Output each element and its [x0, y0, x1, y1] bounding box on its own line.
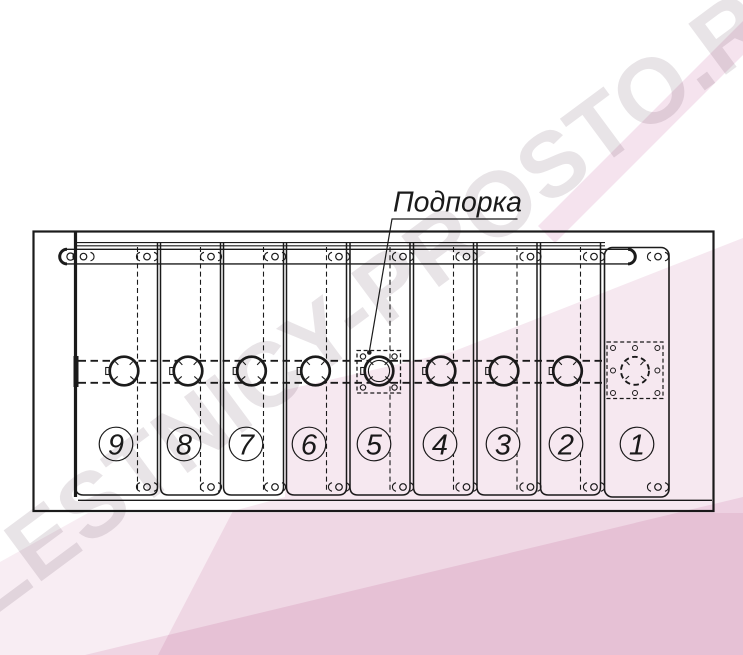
rail-right-cap [628, 249, 635, 264]
rivet-arc-right [601, 483, 605, 492]
mount-plate-hole [611, 346, 616, 351]
rivet-arc-right [601, 252, 605, 261]
rivet-arc-left [136, 252, 140, 261]
rivet-hole [527, 253, 534, 260]
step-number-badge: 4 [423, 427, 457, 461]
rivet-icon [647, 483, 668, 492]
step-number: 5 [366, 429, 383, 461]
rivet-arc-right [91, 252, 95, 261]
mount-plate-hole [633, 391, 638, 396]
bolt-tick [626, 362, 629, 365]
support-callout-label: Подпорка [393, 187, 522, 219]
rivet-arc-left [136, 483, 140, 492]
bolt-circle [365, 357, 394, 386]
rivet-arc-left [647, 483, 651, 492]
rivet-hole [527, 484, 534, 491]
rivet-arc-right [154, 483, 158, 492]
bolt-circle [553, 357, 582, 386]
rivet-hole [272, 484, 279, 491]
rivet-icon [583, 483, 604, 492]
rivet-hole [208, 253, 215, 260]
step-number-badge: 9 [99, 427, 133, 461]
step-number: 8 [176, 429, 192, 461]
rivet-icon [136, 483, 157, 492]
rivet-icon [200, 252, 221, 261]
rail-left-cap [60, 249, 67, 264]
diagram-canvas: Подпорка 987654321 LESTNICY-PROSTO.RU [0, 0, 743, 655]
mount-hole-circle [621, 357, 649, 385]
step-number-badge: 5 [357, 427, 391, 461]
rivet-arc-left [583, 483, 587, 492]
step-number-badge: 8 [167, 427, 201, 461]
rivet-arc-left [520, 483, 524, 492]
step-number: 4 [432, 429, 448, 461]
rivet-arc-left [200, 483, 204, 492]
rivet-arc-left [264, 252, 268, 261]
mount-plate-hole [633, 346, 638, 351]
bolt-circle [427, 357, 456, 386]
rivet-hole [208, 484, 215, 491]
rivet-hole [80, 253, 87, 260]
rivet-hole [591, 484, 598, 491]
mount-plate-hole [655, 368, 660, 373]
bolt-circle [490, 357, 519, 386]
rivet-arc-left [583, 252, 587, 261]
rivet-arc-left [392, 483, 396, 492]
rivet-arc-right [665, 252, 669, 261]
rivet-hole [463, 253, 470, 260]
rivet-hole [655, 253, 662, 260]
rivet-icon [647, 252, 668, 261]
bolt-circle [110, 357, 139, 386]
mount-plate-hole [655, 391, 660, 396]
callout-leader-line [369, 219, 392, 354]
rivet-arc-left [520, 252, 524, 261]
rivet-arc-left [328, 252, 332, 261]
rivet-arc-left [647, 252, 651, 261]
bolt-tick [641, 376, 644, 379]
rivet-arc-left [328, 483, 332, 492]
step-number: 1 [629, 429, 645, 461]
step-number-badge: 2 [549, 427, 583, 461]
rivet-icon [583, 252, 604, 261]
rivet-icon [136, 252, 157, 261]
rivet-icon [520, 483, 541, 492]
step-number-badge: 3 [486, 427, 520, 461]
rivet-hole [272, 253, 279, 260]
step-number-badge: 6 [292, 427, 326, 461]
rivet-arc-right [154, 252, 158, 261]
step-number: 9 [108, 429, 124, 461]
rivet-hole [591, 253, 598, 260]
rivet-arc-left [456, 483, 460, 492]
rivet-hole [400, 253, 407, 260]
bolt-circle [301, 357, 330, 386]
bolt-circle [174, 357, 203, 386]
rivet-arc-left [264, 483, 268, 492]
step-number: 6 [301, 429, 318, 461]
rivet-icon [264, 252, 285, 261]
rivet-hole [400, 484, 407, 491]
rivet-arc-left [200, 252, 204, 261]
bolt-circle [237, 357, 266, 386]
rivet-hole [144, 253, 151, 260]
rivet-arc-right [665, 483, 669, 492]
rivet-icon [520, 252, 541, 261]
step-number: 2 [557, 429, 574, 461]
rivet-arc-right [538, 252, 542, 261]
mount-plate-hole [611, 368, 616, 373]
rivet-hole [336, 484, 343, 491]
mount-plate-hole [611, 391, 616, 396]
step-number-badge: 7 [229, 427, 263, 461]
rivet-arc-right [538, 483, 542, 492]
rivet-hole [463, 484, 470, 491]
step-number: 3 [495, 429, 511, 461]
step-number: 7 [238, 429, 256, 461]
rivet-hole [655, 484, 662, 491]
rivet-arc-left [456, 252, 460, 261]
step-number-badge: 1 [620, 427, 654, 461]
mount-plate-hole [655, 346, 660, 351]
rivet-arc-left [392, 252, 396, 261]
top-rail [60, 249, 636, 264]
callout-leader-dot [367, 350, 372, 355]
bolt-tick [640, 362, 643, 365]
staircase-drawing: Подпорка 987654321 [0, 0, 743, 655]
rivet-hole [144, 484, 151, 491]
bolt-tick [626, 376, 629, 379]
rivet-hole [336, 253, 343, 260]
rivet-icon [200, 483, 221, 492]
